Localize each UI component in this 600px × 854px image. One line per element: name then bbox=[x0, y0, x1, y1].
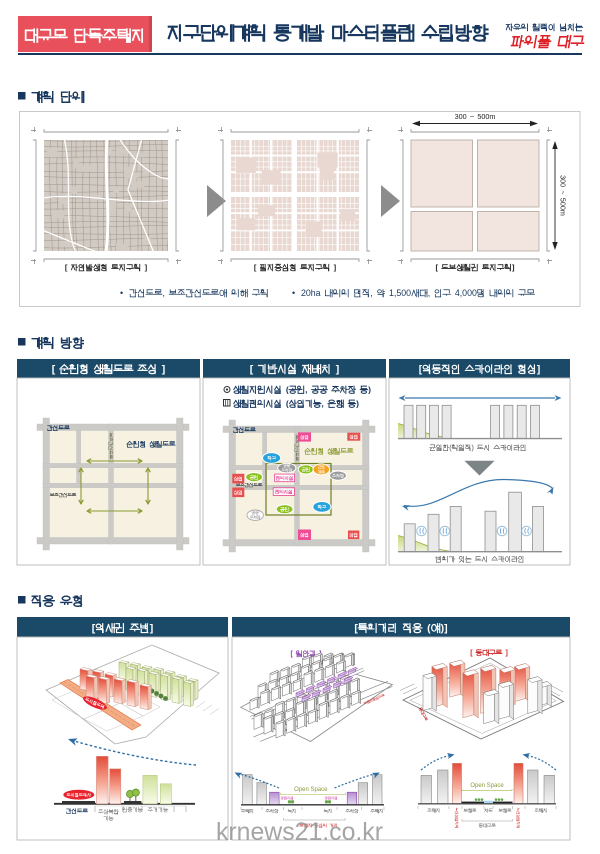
svg-text:•: • bbox=[120, 288, 123, 298]
svg-text:(: ( bbox=[286, 399, 289, 409]
svg-text:]: ] bbox=[444, 623, 448, 635]
svg-text:m: m bbox=[559, 210, 568, 216]
svg-text:~: ~ bbox=[470, 112, 474, 121]
svg-text:,: , bbox=[162, 288, 164, 298]
svg-text:]: ] bbox=[336, 364, 340, 376]
svg-text:[: [ bbox=[52, 364, 56, 376]
svg-text:]: ] bbox=[537, 365, 540, 376]
svg-text:•: • bbox=[292, 288, 295, 298]
svg-text:): ) bbox=[356, 399, 359, 409]
svg-text:Open Space: Open Space bbox=[470, 783, 504, 789]
svg-text:): ) bbox=[472, 445, 474, 452]
svg-text:0: 0 bbox=[559, 183, 568, 187]
svg-text:0: 0 bbox=[472, 288, 477, 298]
svg-text:~: ~ bbox=[559, 190, 568, 194]
svg-text:(: ( bbox=[427, 623, 431, 635]
svg-text:a: a bbox=[316, 288, 321, 298]
svg-text:]: ] bbox=[150, 623, 154, 635]
svg-text:[: [ bbox=[354, 623, 358, 635]
svg-text:]: ] bbox=[505, 650, 507, 657]
svg-text:,: , bbox=[370, 288, 372, 298]
svg-text:Open Space: Open Space bbox=[294, 787, 328, 793]
svg-text:,: , bbox=[305, 385, 307, 395]
svg-text:[: [ bbox=[419, 365, 423, 376]
svg-text:krnews21.co.kr: krnews21.co.kr bbox=[216, 819, 383, 846]
svg-text:,: , bbox=[321, 399, 323, 409]
svg-text:,: , bbox=[428, 288, 430, 298]
svg-text:]: ] bbox=[162, 364, 166, 376]
svg-text:0: 0 bbox=[463, 112, 467, 121]
svg-text:0: 0 bbox=[406, 288, 411, 298]
svg-text:m: m bbox=[489, 112, 495, 121]
svg-text:(: ( bbox=[286, 385, 289, 395]
svg-text:[: [ bbox=[250, 364, 254, 376]
svg-text:[: [ bbox=[92, 623, 96, 635]
svg-text:): ) bbox=[368, 385, 371, 395]
